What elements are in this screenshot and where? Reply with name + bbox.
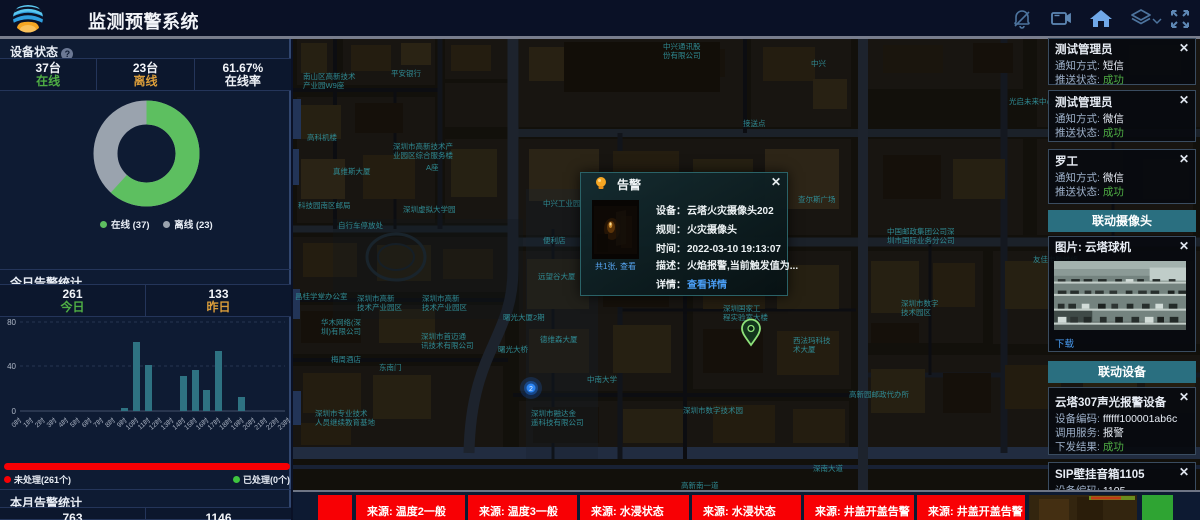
svg-text:东南门: 东南门 [379,362,402,372]
svg-text:中国邮政集团公司深圳市国际业务分公司: 中国邮政集团公司深圳市国际业务分公司 [887,226,955,245]
svg-text:深圳市首迈通讯技术有限公司: 深圳市首迈通讯技术有限公司 [421,331,474,350]
svg-text:深南大道: 深南大道 [813,463,843,473]
svg-text:A座: A座 [426,162,439,172]
svg-text:德维森大厦: 德维森大厦 [540,334,578,344]
svg-text:科技园南区邮局: 科技园南区邮局 [298,200,351,210]
svg-text:华木网络(深圳)有限公司: 华木网络(深圳)有限公司 [321,317,361,336]
svg-text:中兴工业园: 中兴工业园 [543,198,581,208]
svg-text:自行车停放处: 自行车停放处 [338,220,383,230]
svg-text:高新园邮政代办所: 高新园邮政代办所 [849,389,909,399]
svg-text:查尔斯广场: 查尔斯广场 [798,194,836,204]
svg-text:高科机楼: 高科机楼 [307,132,337,142]
svg-text:中兴: 中兴 [811,58,826,68]
svg-text:真维斯大厦: 真维斯大厦 [333,166,371,176]
svg-text:曙光大桥: 曙光大桥 [498,344,528,354]
svg-text:中南大学: 中南大学 [587,374,617,384]
svg-text:4时: 4时 [56,416,70,430]
svg-text:6时: 6时 [80,416,94,430]
svg-text:7时: 7时 [91,416,105,430]
svg-text:5时: 5时 [68,416,82,430]
svg-text:梅周酒店: 梅周酒店 [331,354,361,364]
svg-text:2: 2 [529,386,533,393]
svg-text:便利店: 便利店 [543,235,566,245]
svg-text:接送点: 接送点 [743,118,766,128]
svg-text:3时: 3时 [44,416,58,430]
svg-text:曙光大厦2期: 曙光大厦2期 [503,312,545,322]
svg-text:0时: 0时 [9,416,23,430]
svg-text:中兴通讯股份有限公司: 中兴通讯股份有限公司 [663,41,701,60]
svg-text:深圳虚拟大学园: 深圳虚拟大学园 [403,204,456,214]
svg-text:40: 40 [7,362,16,371]
svg-text:深圳市融达金遥科技有限公司: 深圳市融达金遥科技有限公司 [531,408,584,427]
svg-text:深圳市数字技术园: 深圳市数字技术园 [683,405,743,415]
svg-text:2时: 2时 [33,416,47,430]
svg-text:平安银行: 平安银行 [391,68,421,78]
svg-text:高新南一道: 高新南一道 [681,480,719,490]
svg-text:8时: 8时 [103,416,117,430]
svg-text:远望谷大厦: 远望谷大厦 [538,271,576,281]
svg-text:1时: 1时 [21,416,35,430]
svg-text:0: 0 [12,407,17,416]
svg-text:深圳市专业技术人员继续教育基地: 深圳市专业技术人员继续教育基地 [315,408,375,427]
svg-text:昌桂学堂办公室: 昌桂学堂办公室 [295,291,348,301]
svg-text:深圳市高新技术产业园区综合服务楼: 深圳市高新技术产业园区综合服务楼 [393,141,453,160]
svg-text:80: 80 [7,318,16,327]
